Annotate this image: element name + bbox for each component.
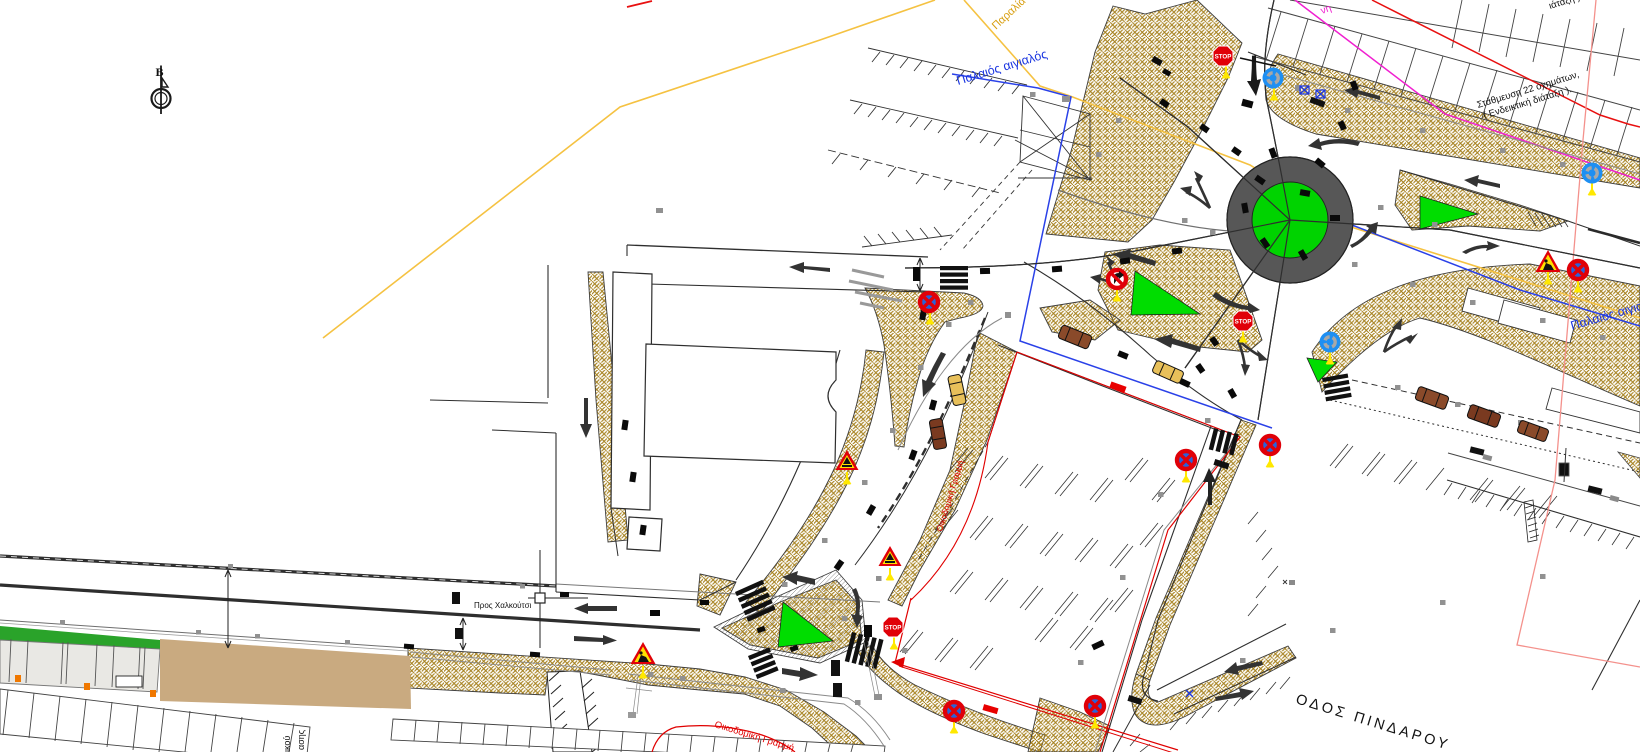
- svg-text:Προς Χαλκούτσι: Προς Χαλκούτσι: [474, 601, 532, 610]
- svg-text:ασης: ασης: [296, 729, 306, 750]
- svg-text:ικού: ικού: [282, 736, 292, 752]
- svg-text:B: B: [156, 65, 164, 79]
